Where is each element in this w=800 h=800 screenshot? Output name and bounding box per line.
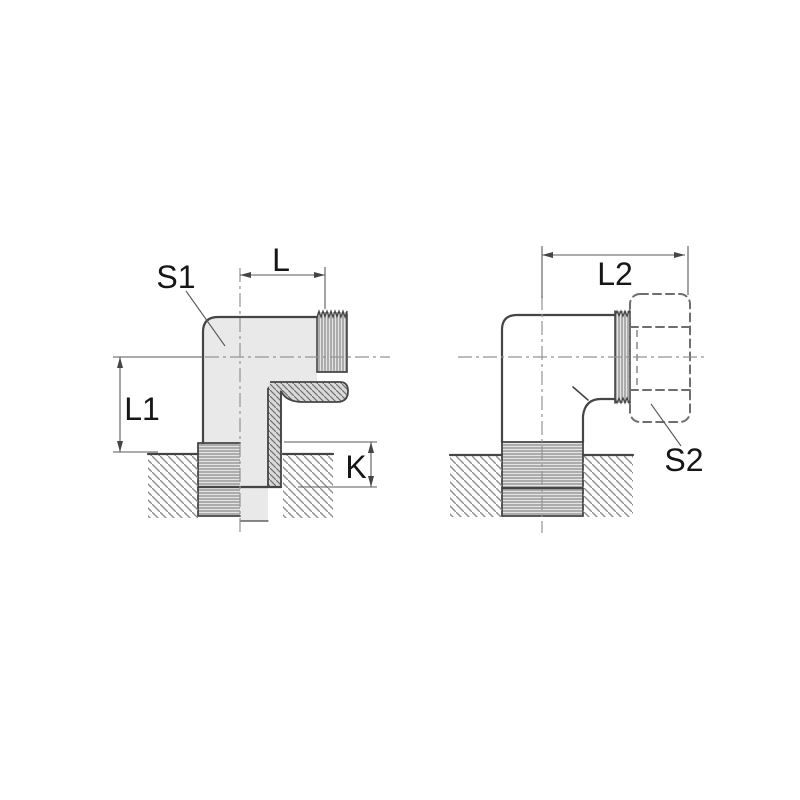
elbow-profile-outline-neck — [583, 399, 614, 442]
right-view: L2 S2 — [450, 246, 706, 533]
phantom-nut — [630, 294, 690, 422]
port-thread-lines — [317, 312, 347, 372]
plate-hatch-right — [283, 454, 333, 518]
drawing-page: L L1 K S1 — [0, 0, 800, 800]
nut-outline — [630, 294, 690, 422]
plate-hatch-left — [148, 454, 198, 518]
dim-label-s2: S2 — [664, 442, 703, 478]
dimension-l: L — [240, 242, 325, 309]
dim-l2-arrow-left — [542, 252, 553, 258]
dim-l-arrow-right — [314, 272, 325, 278]
dim-l2-arrow-right — [674, 252, 685, 258]
bore-void — [240, 440, 268, 521]
dim-l1-arrow-top — [117, 357, 123, 368]
stud-thread-lines — [198, 443, 240, 516]
dimension-l1: L1 — [113, 357, 203, 452]
dim-k-arrow-top — [368, 442, 374, 453]
dimension-l2: L2 — [542, 246, 688, 298]
plate-hatch-left-profile — [450, 455, 502, 517]
dim-label-l2: L2 — [597, 256, 633, 292]
dim-label-s1: S1 — [156, 259, 195, 295]
dim-k-arrow-bottom — [368, 476, 374, 487]
callout-s2: S2 — [651, 404, 704, 478]
dim-label-k: K — [345, 449, 366, 485]
socket-face-profile — [512, 329, 575, 390]
plate-hatch-right-profile — [583, 455, 633, 517]
dim-label-l1: L1 — [124, 391, 160, 427]
dim-label-l: L — [272, 242, 290, 278]
s2-leader-line — [651, 404, 681, 446]
left-view: L L1 K S1 — [113, 242, 390, 533]
technical-drawing: L L1 K S1 — [0, 0, 800, 800]
dim-l-arrow-left — [240, 272, 251, 278]
dim-l1-arrow-bottom — [117, 441, 123, 452]
